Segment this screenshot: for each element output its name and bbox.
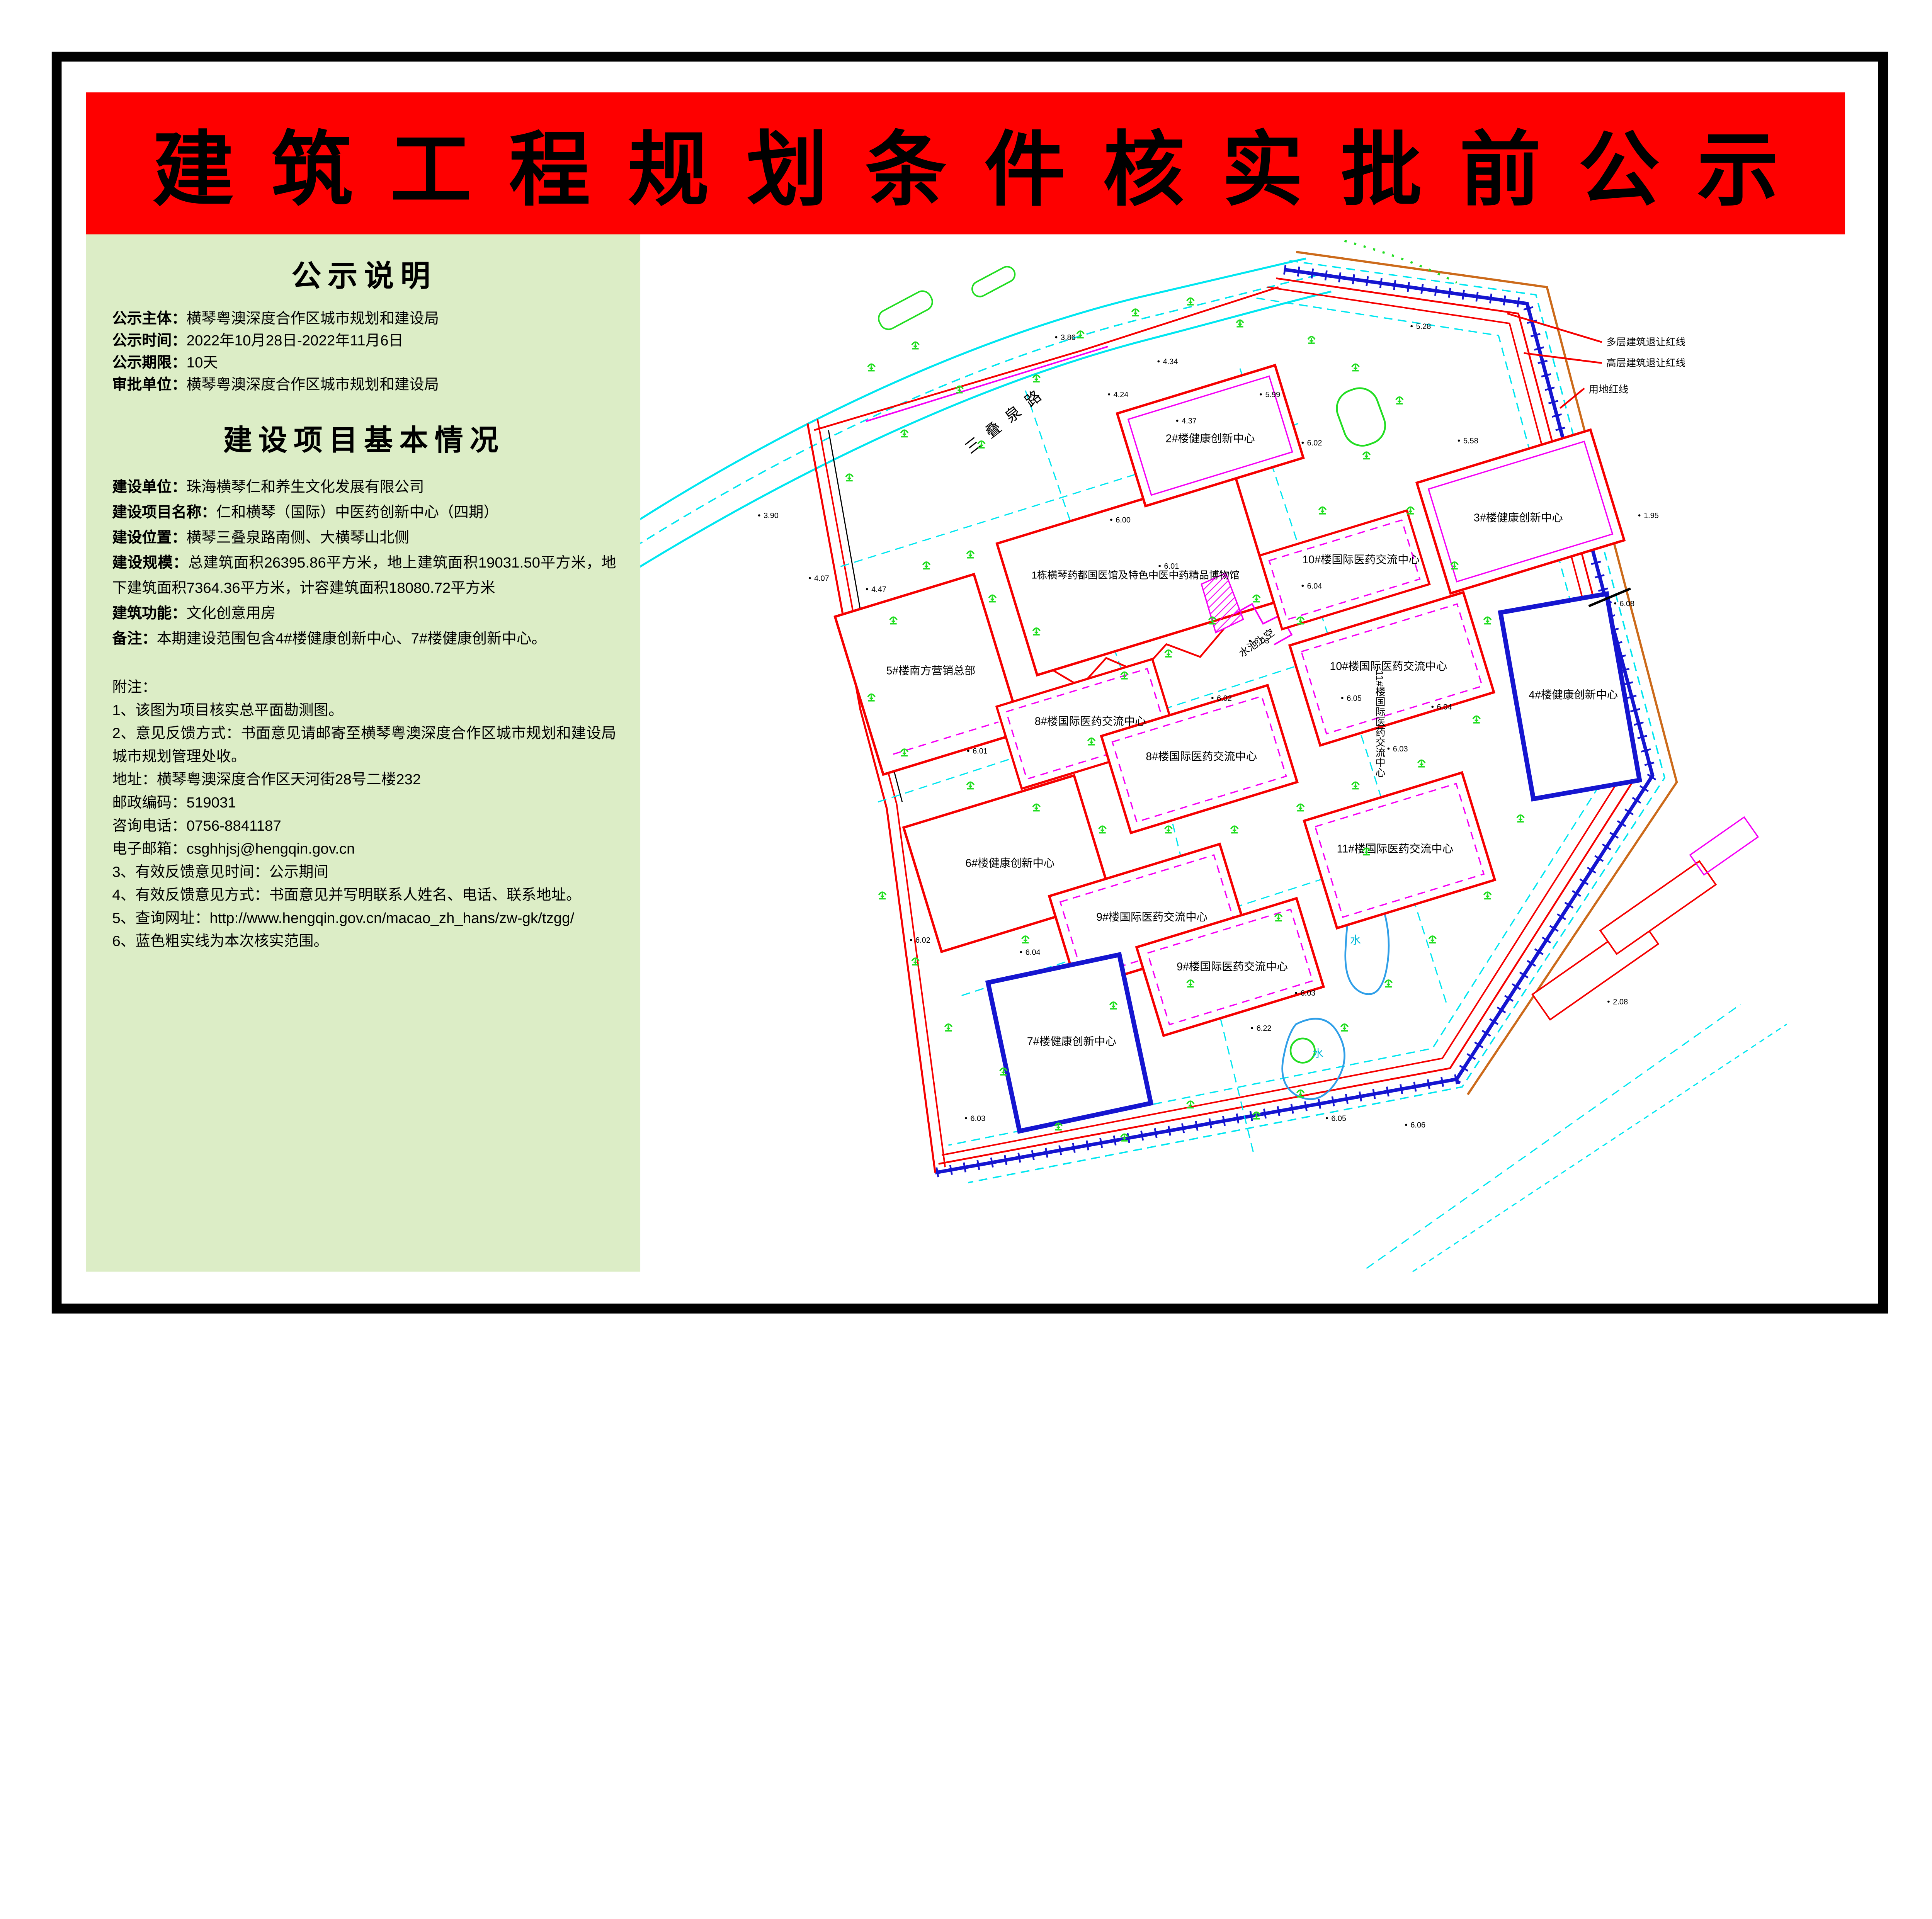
building-label-vertical: 11#楼国际医药交流中心 bbox=[1374, 670, 1386, 777]
building-label: 9#楼国际医药交流中心 bbox=[1177, 960, 1288, 973]
building-label: 10#楼国际医药交流中心 bbox=[1330, 660, 1447, 673]
spot-elevation-dot bbox=[1638, 514, 1641, 517]
notice-heading: 公示说明 bbox=[112, 252, 616, 295]
project-value: 文化创意用房 bbox=[187, 605, 276, 622]
banner: 建筑工程规划条件核实批前公示 bbox=[86, 92, 1845, 234]
spot-elevation-dot bbox=[1458, 440, 1460, 442]
spot-elevation-dot bbox=[1388, 748, 1390, 750]
notice-row: 公示期限：10天 bbox=[112, 352, 616, 374]
spot-elevation: 6.03 bbox=[1301, 989, 1316, 998]
spot-elevation: 3.90 bbox=[764, 512, 779, 520]
building-label: 8#楼国际医药交流中心 bbox=[1146, 751, 1257, 763]
tree-icon bbox=[1418, 760, 1425, 767]
spot-elevation-dot bbox=[809, 577, 811, 579]
remarks-line: 邮政编码：519031 bbox=[112, 791, 616, 814]
tree-icon bbox=[868, 364, 875, 371]
building-label: 6#楼健康创新中心 bbox=[965, 857, 1054, 870]
project-row: 建设规模：总建筑面积26395.86平方米，地上建筑面积19031.50平方米，… bbox=[112, 550, 616, 601]
tree-icon bbox=[1297, 804, 1304, 811]
project-label: 备注： bbox=[112, 631, 156, 647]
spot-elevation-dot bbox=[1110, 519, 1112, 521]
leader-line bbox=[1560, 388, 1585, 408]
project-row: 建筑功能：文化创意用房 bbox=[112, 601, 616, 626]
spot-elevation: 5.58 bbox=[1463, 437, 1478, 445]
tree-icon bbox=[1022, 936, 1029, 943]
spot-elevation-dot bbox=[866, 588, 868, 590]
info-panel: 公示说明 公示主体：横琴粤澳深度合作区城市规划和建设局 公示时间：2022年10… bbox=[86, 234, 640, 1271]
setback-label: 高层建筑退让红线 bbox=[1606, 357, 1685, 369]
building-label: 11#楼国际医药交流中心 bbox=[1337, 843, 1454, 855]
notice-label: 公示时间： bbox=[112, 332, 186, 349]
tree-icon bbox=[1429, 936, 1436, 943]
tree-icon bbox=[1319, 507, 1326, 514]
project-label: 建设项目名称： bbox=[112, 504, 216, 520]
spot-elevation: 6.03 bbox=[1254, 637, 1269, 646]
spot-elevation-dot bbox=[1410, 325, 1413, 327]
spot-elevation-dot bbox=[1301, 585, 1304, 587]
spot-elevation-dot bbox=[1020, 951, 1022, 954]
spot-elevation: 3.86 bbox=[1061, 333, 1076, 342]
tree-icon bbox=[1165, 826, 1172, 833]
setback-label: 用地红线 bbox=[1589, 384, 1628, 395]
spot-elevation: 6.02 bbox=[915, 936, 930, 945]
remarks-line: 地址：横琴粤澳深度合作区天河街28号二楼232 bbox=[112, 768, 616, 791]
spot-elevation: 5.99 bbox=[1265, 391, 1280, 399]
building-label: 5#楼南方营销总部 bbox=[886, 665, 975, 677]
building-label: 8#楼国际医药交流中心 bbox=[1035, 715, 1146, 727]
notice-value: 10天 bbox=[187, 354, 218, 371]
spot-elevation: 6.05 bbox=[1331, 1114, 1346, 1123]
remarks-line: 6、蓝色粗实线为本次核实范围。 bbox=[112, 930, 616, 953]
setback-label: 多层建筑退让红线 bbox=[1606, 337, 1685, 348]
tree-icon bbox=[945, 1024, 952, 1031]
project-label: 建设规模： bbox=[112, 554, 188, 571]
tree-icon bbox=[1363, 452, 1370, 459]
tree-icon bbox=[1396, 397, 1403, 404]
building-label: 4#楼健康创新中心 bbox=[1529, 689, 1618, 701]
spot-elevation-dot bbox=[965, 1117, 967, 1120]
tree-icon bbox=[1484, 892, 1491, 899]
green-planter bbox=[969, 264, 1017, 299]
notice-sheet: 建筑工程规划条件核实批前公示 公示说明 公示主体：横琴粤澳深度合作区城市规划和建… bbox=[0, 0, 1932, 1366]
site-plan-svg: 三叠泉路 多层建筑退让红线 高层建筑退让红线 用地红线 2#楼健康创新中心 3#… bbox=[640, 234, 1845, 1271]
remarks-line: 1、该图为项目核实总平面勘测图。 bbox=[112, 699, 616, 722]
tree-icon bbox=[1165, 650, 1172, 657]
project-value: 横琴三叠泉路南侧、大横琴山北侧 bbox=[187, 529, 410, 546]
spot-elevation-dot bbox=[1431, 706, 1434, 708]
spot-elevation: 4.37 bbox=[1182, 417, 1197, 425]
project-heading: 建设项目基本情况 bbox=[112, 418, 616, 459]
green-planter bbox=[1332, 383, 1390, 451]
tree-icon bbox=[901, 430, 908, 437]
project-value: 总建筑面积26395.86平方米，地上建筑面积19031.50平方米，地下建筑面… bbox=[112, 554, 616, 596]
spot-elevation-dot bbox=[1341, 697, 1344, 699]
spot-elevation: 2.08 bbox=[1613, 998, 1628, 1006]
spot-elevation: 6.03 bbox=[1393, 745, 1408, 753]
tree-icon bbox=[923, 562, 930, 569]
offsite-structures bbox=[1532, 817, 1758, 1020]
tree-icon bbox=[967, 782, 974, 789]
building-label: 2#楼健康创新中心 bbox=[1166, 433, 1255, 445]
spot-elevation-dot bbox=[910, 939, 912, 941]
remarks-line: 咨询电话：0756-8841187 bbox=[112, 814, 616, 837]
remarks-block: 附注： 1、该图为项目核实总平面勘测图。 2、意见反馈方式：书面意见请邮寄至横琴… bbox=[112, 675, 616, 953]
spot-elevation: 4.07 bbox=[814, 574, 829, 583]
water-label: 水 bbox=[1313, 1047, 1323, 1060]
green-planter bbox=[876, 288, 935, 333]
spot-elevation-dot bbox=[1055, 336, 1058, 338]
spot-elevation-dot bbox=[1251, 1027, 1253, 1029]
tree-icon bbox=[1132, 309, 1139, 316]
building-label: 7#楼健康创新中心 bbox=[1027, 1035, 1116, 1048]
remarks-line: 2、意见反馈方式：书面意见请邮寄至横琴粤澳深度合作区城市规划和建设局城市规划管理… bbox=[112, 722, 616, 768]
spot-elevation-dot bbox=[758, 514, 760, 517]
project-label: 建筑功能： bbox=[112, 605, 186, 622]
spot-elevation-dot bbox=[1607, 1001, 1610, 1003]
notice-row: 审批单位：横琴粤澳深度合作区城市规划和建设局 bbox=[112, 374, 616, 396]
spot-elevation: 6.02 bbox=[1217, 694, 1232, 703]
spot-elevation-dot bbox=[1405, 1124, 1407, 1126]
tree-icon bbox=[1473, 716, 1480, 723]
spot-elevation: 6.01 bbox=[1164, 562, 1179, 571]
tree-icon bbox=[1484, 617, 1491, 624]
tree-icon bbox=[1187, 298, 1194, 305]
tree-icon bbox=[879, 892, 886, 899]
project-label: 建设单位： bbox=[112, 479, 186, 495]
project-info: 建设单位：珠海横琴仁和养生文化发展有限公司 建设项目名称：仁和横琴（国际）中医药… bbox=[112, 474, 616, 651]
tree-icon bbox=[1033, 375, 1040, 382]
building-label: 10#楼国际医药交流中心 bbox=[1302, 554, 1420, 566]
tree-icon bbox=[1352, 782, 1359, 789]
tree-icon bbox=[1099, 826, 1106, 833]
spot-elevation-dot bbox=[1158, 565, 1161, 567]
building-label: 9#楼国际医药交流中心 bbox=[1096, 911, 1207, 923]
notice-label: 公示期限： bbox=[112, 354, 186, 371]
building-label: 3#楼健康创新中心 bbox=[1474, 512, 1563, 524]
leader-line bbox=[1524, 353, 1602, 363]
spot-elevation: 4.24 bbox=[1114, 391, 1129, 399]
notice-value: 横琴粤澳深度合作区城市规划和建设局 bbox=[187, 310, 439, 327]
tree-icon bbox=[1385, 980, 1392, 987]
tree-icon bbox=[989, 595, 996, 602]
spot-elevation-dot bbox=[1295, 992, 1297, 994]
spot-elevation-dot bbox=[1211, 697, 1214, 699]
spot-elevation-dot bbox=[1301, 442, 1304, 444]
spot-elevation: 6.08 bbox=[1619, 600, 1634, 608]
spot-elevation: 6.05 bbox=[1347, 694, 1362, 703]
notice-label: 审批单位： bbox=[112, 376, 186, 393]
tree-icon bbox=[1236, 320, 1243, 327]
spot-elevation-dot bbox=[1108, 393, 1110, 396]
spot-elevation: 6.04 bbox=[1307, 582, 1322, 590]
spot-elevation-dot bbox=[1157, 360, 1160, 363]
remarks-line: 电子邮箱：csghhjsj@hengqin.gov.cn bbox=[112, 837, 616, 860]
tree-icon bbox=[1231, 826, 1238, 833]
spot-elevation: 1.95 bbox=[1644, 512, 1659, 520]
spot-elevation-dot bbox=[1249, 640, 1251, 642]
tree-icon bbox=[967, 551, 974, 558]
tree-icon bbox=[912, 342, 919, 349]
building-label: 1栋横琴药都国医馆及特色中医中药精品博物馆 bbox=[1031, 569, 1239, 581]
road-name-label: 三叠泉路 bbox=[962, 381, 1053, 457]
spot-elevation: 4.34 bbox=[1163, 357, 1178, 366]
tree-icon bbox=[1308, 337, 1315, 343]
spot-elevation: 5.28 bbox=[1416, 322, 1431, 331]
spot-elevation-dot bbox=[1176, 420, 1179, 422]
notice-value: 横琴粤澳深度合作区城市规划和建设局 bbox=[187, 376, 439, 393]
spot-elevation: 6.04 bbox=[1437, 703, 1452, 712]
project-label: 建设位置： bbox=[112, 529, 186, 546]
spot-elevation: 6.06 bbox=[1410, 1121, 1425, 1130]
spot-elevation: 6.00 bbox=[1116, 516, 1131, 525]
spot-elevation: 6.03 bbox=[970, 1114, 985, 1123]
spot-elevation-dot bbox=[1260, 393, 1262, 396]
spot-elevation: 6.01 bbox=[973, 747, 988, 755]
tree-icon bbox=[846, 474, 853, 481]
project-value: 本期建设范围包含4#楼健康创新中心、7#楼健康创新中心。 bbox=[157, 631, 546, 647]
spot-elevation: 6.22 bbox=[1257, 1024, 1272, 1033]
water-label: 水 bbox=[1350, 934, 1361, 947]
spot-elevation-dot bbox=[1326, 1117, 1328, 1120]
green-circle bbox=[1291, 1039, 1315, 1063]
remarks-line: 5、查询网址：http://www.hengqin.gov.cn/macao_z… bbox=[112, 906, 616, 930]
spot-elevation: 4.47 bbox=[871, 585, 886, 594]
project-row: 备注：本期建设范围包含4#楼健康创新中心、7#楼健康创新中心。 bbox=[112, 626, 616, 651]
spot-elevation: 6.02 bbox=[1307, 439, 1322, 447]
spot-elevation: 6.04 bbox=[1026, 948, 1041, 957]
project-row: 建设项目名称：仁和横琴（国际）中医药创新中心（四期） bbox=[112, 500, 616, 525]
notice-value: 2022年10月28日-2022年11月6日 bbox=[187, 332, 403, 349]
project-value: 仁和横琴（国际）中医药创新中心（四期） bbox=[216, 504, 498, 520]
tree-icon bbox=[1517, 815, 1524, 822]
project-row: 建设单位：珠海横琴仁和养生文化发展有限公司 bbox=[112, 474, 616, 499]
remarks-line: 3、有效反馈意见时间：公示期间 bbox=[112, 860, 616, 884]
tree-icon bbox=[1341, 1024, 1348, 1031]
spot-elevation-dot bbox=[1614, 602, 1616, 605]
project-value: 珠海横琴仁和养生文化发展有限公司 bbox=[187, 479, 424, 495]
tree-icon bbox=[1352, 364, 1359, 371]
project-row: 建设位置：横琴三叠泉路南侧、大横琴山北侧 bbox=[112, 525, 616, 550]
remarks-line: 4、有效反馈意见方式：书面意见并写明联系人姓名、电话、联系地址。 bbox=[112, 883, 616, 906]
page-title: 建筑工程规划条件核实批前公示 bbox=[115, 105, 1816, 223]
spot-elevation-dot bbox=[967, 750, 969, 752]
notice-label: 公示主体： bbox=[112, 310, 186, 327]
site-plan-map: 三叠泉路 多层建筑退让红线 高层建筑退让红线 用地红线 2#楼健康创新中心 3#… bbox=[640, 234, 1845, 1271]
notice-row: 公示主体：横琴粤澳深度合作区城市规划和建设局 bbox=[112, 308, 616, 330]
remarks-heading: 附注： bbox=[112, 675, 616, 699]
notice-row: 公示时间：2022年10月28日-2022年11月6日 bbox=[112, 330, 616, 352]
